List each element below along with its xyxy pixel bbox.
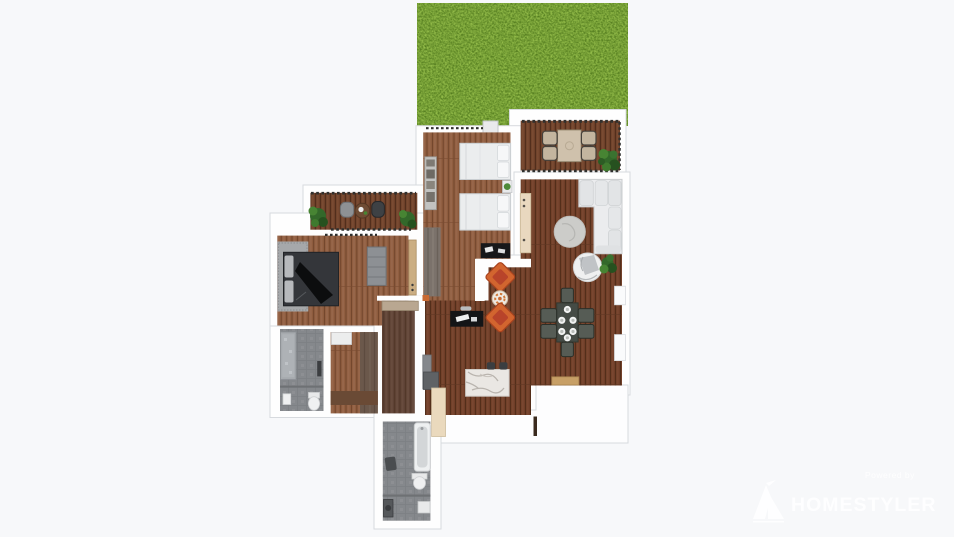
svg-text:Powered by: Powered by: [865, 470, 915, 480]
svg-text:HOMESTYLER: HOMESTYLER: [791, 494, 936, 516]
